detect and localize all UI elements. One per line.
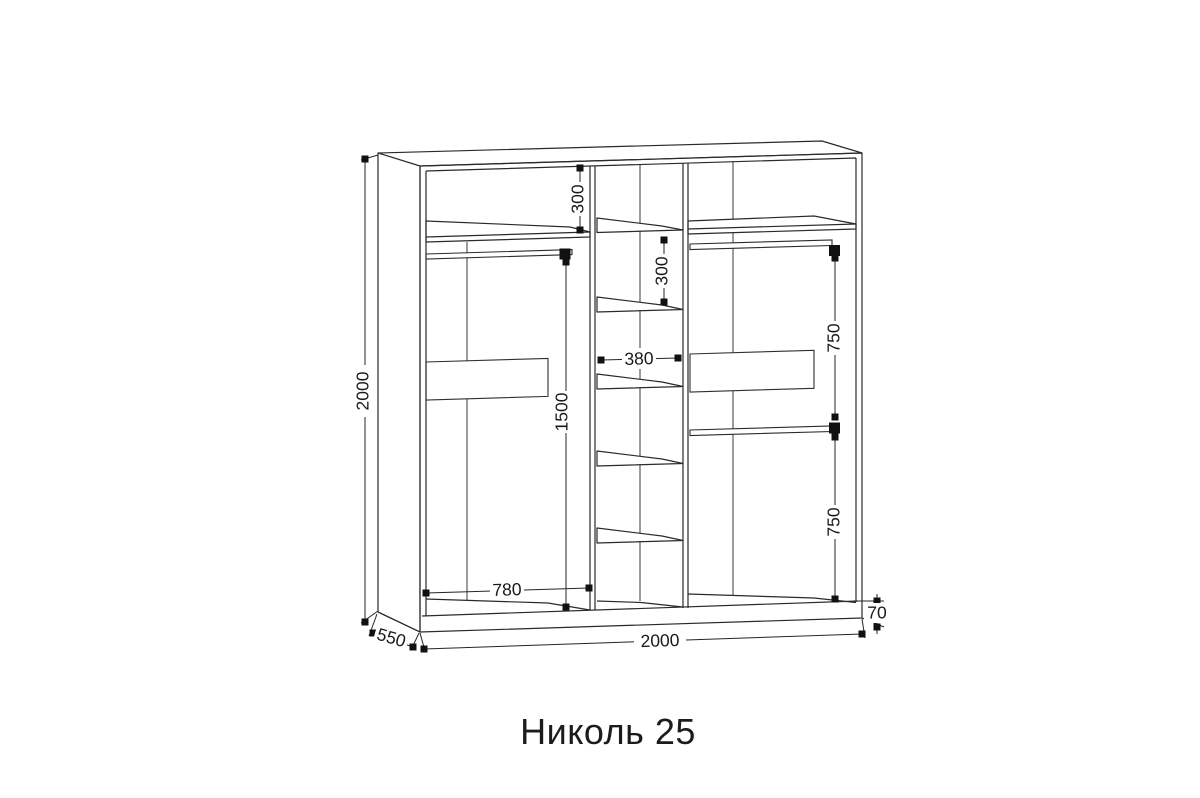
dim-top-shelf-offset-label: 300 <box>568 184 588 213</box>
dim-right-lower-section: 750 <box>823 505 844 539</box>
left-top-shelf <box>426 221 590 242</box>
dim-left-section-width-label: 780 <box>492 579 522 600</box>
product-title: Николь 25 <box>520 711 696 752</box>
dim-overall-height-label: 2000 <box>353 371 373 410</box>
dim-middle-section-width-label: 380 <box>624 348 654 369</box>
dim-depth: 550 <box>372 623 411 653</box>
back-panel-bands <box>426 350 814 400</box>
dim-right-upper-section-label: 750 <box>824 323 844 352</box>
left-hanging-rod <box>426 250 572 259</box>
dim-right-lower-section-label: 750 <box>824 507 844 536</box>
right-upper-rod-bracket <box>829 245 840 256</box>
dim-depth-label: 550 <box>375 624 409 651</box>
dim-left-section-width: 780 <box>490 578 525 600</box>
dim-overall-height: 2000 <box>352 365 373 417</box>
dim-right-upper-section: 750 <box>823 321 844 355</box>
right-lower-rod-bracket <box>829 423 840 434</box>
dim-middle-shelf-gap: 300 <box>651 254 672 288</box>
dim-overall-width-label: 2000 <box>640 630 680 651</box>
right-top-shelf <box>688 216 856 234</box>
left-rod-bracket <box>560 249 571 260</box>
dim-rod-to-floor-label: 1500 <box>552 392 572 431</box>
dim-top-shelf-offset: 300 <box>567 182 588 216</box>
dim-overall-width: 2000 <box>634 629 687 652</box>
dim-plinth-height-label: 70 <box>867 603 887 623</box>
dim-middle-section-width: 380 <box>622 347 657 369</box>
dim-plinth-height: 70 <box>864 603 890 624</box>
right-lower-rod <box>690 426 832 436</box>
right-upper-rod <box>690 240 832 250</box>
dim-middle-shelf-gap-label: 300 <box>652 256 672 285</box>
right-back-band <box>690 350 814 392</box>
left-back-band <box>426 358 548 400</box>
wardrobe-technical-drawing: 2000 1500 300 300 750 750 380 780 <box>0 0 1200 798</box>
dim-rod-to-floor: 1500 <box>551 391 572 433</box>
drawing-canvas: 2000 1500 300 300 750 750 380 780 <box>0 0 1200 798</box>
hanging-rods <box>426 240 840 436</box>
